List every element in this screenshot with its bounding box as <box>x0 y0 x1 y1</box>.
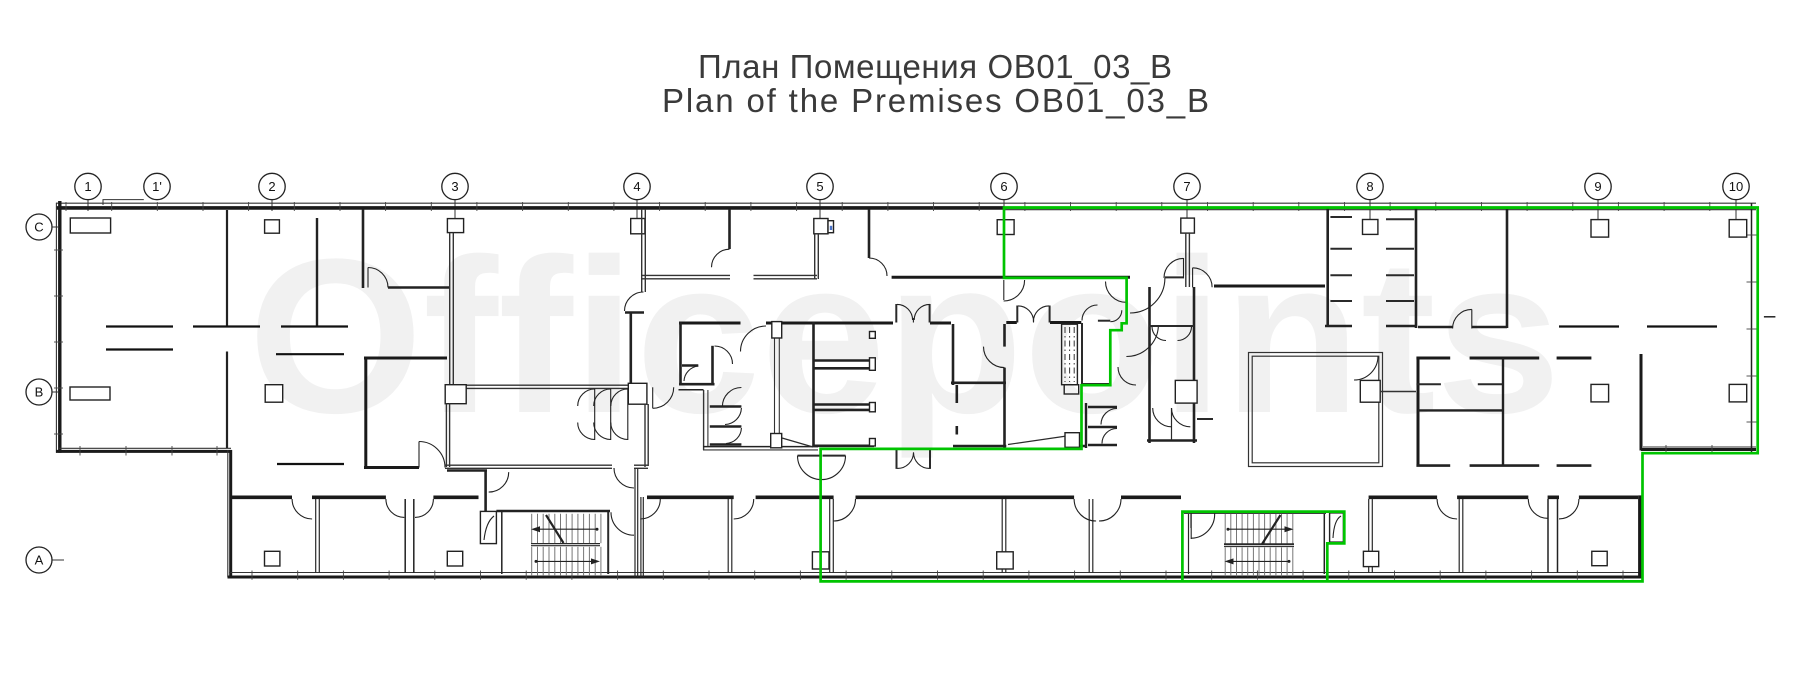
svg-text:4: 4 <box>633 179 640 194</box>
svg-text:B: B <box>35 385 44 400</box>
svg-text:A: A <box>35 553 44 568</box>
svg-text:8: 8 <box>1366 179 1373 194</box>
svg-text:1': 1' <box>152 179 162 194</box>
svg-text:2: 2 <box>268 179 275 194</box>
svg-text:Officepoints: Officepoints <box>248 213 1561 459</box>
svg-text:10: 10 <box>1729 179 1743 194</box>
svg-text:9: 9 <box>1594 179 1601 194</box>
svg-text:1: 1 <box>84 179 91 194</box>
svg-text:C: C <box>34 220 43 235</box>
svg-text:7: 7 <box>1183 179 1190 194</box>
svg-text:План Помещения ОВ01_03_В: План Помещения ОВ01_03_В <box>698 48 1172 85</box>
svg-text:6: 6 <box>1000 179 1007 194</box>
svg-text:3: 3 <box>451 179 458 194</box>
svg-text:5: 5 <box>816 179 823 194</box>
